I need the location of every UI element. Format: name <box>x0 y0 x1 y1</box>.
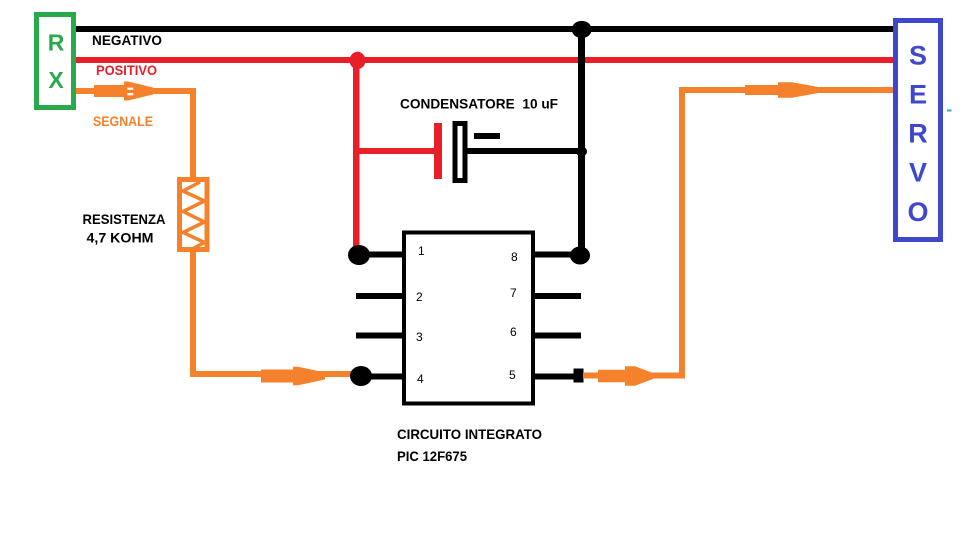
svg-text:O: O <box>907 197 928 227</box>
svg-text:5: 5 <box>509 368 516 382</box>
svg-text:PIC 12F675: PIC 12F675 <box>397 448 467 464</box>
svg-text:1: 1 <box>418 244 425 258</box>
svg-text:4: 4 <box>417 372 424 386</box>
svg-text:8: 8 <box>511 250 518 264</box>
svg-text:4,7 KOHM: 4,7 KOHM <box>87 230 154 246</box>
svg-text:7: 7 <box>510 286 517 300</box>
svg-text:S: S <box>909 41 927 71</box>
svg-text:R: R <box>48 30 65 56</box>
svg-text:CIRCUITO INTEGRATO: CIRCUITO INTEGRATO <box>397 426 542 442</box>
svg-text:V: V <box>909 158 927 188</box>
svg-text:NEGATIVO: NEGATIVO <box>92 32 162 48</box>
svg-text:POSITIVO: POSITIVO <box>96 62 157 78</box>
svg-text:X: X <box>48 67 64 93</box>
svg-text:2: 2 <box>416 290 423 304</box>
svg-text:R: R <box>908 119 928 149</box>
svg-text:E: E <box>909 80 927 110</box>
svg-text:SEGNALE: SEGNALE <box>93 113 153 129</box>
svg-text:6: 6 <box>510 325 517 339</box>
svg-text:3: 3 <box>416 330 423 344</box>
svg-text:RESISTENZA: RESISTENZA <box>83 211 166 227</box>
svg-text:CONDENSATORE 10 uF: CONDENSATORE 10 uF <box>400 96 558 112</box>
